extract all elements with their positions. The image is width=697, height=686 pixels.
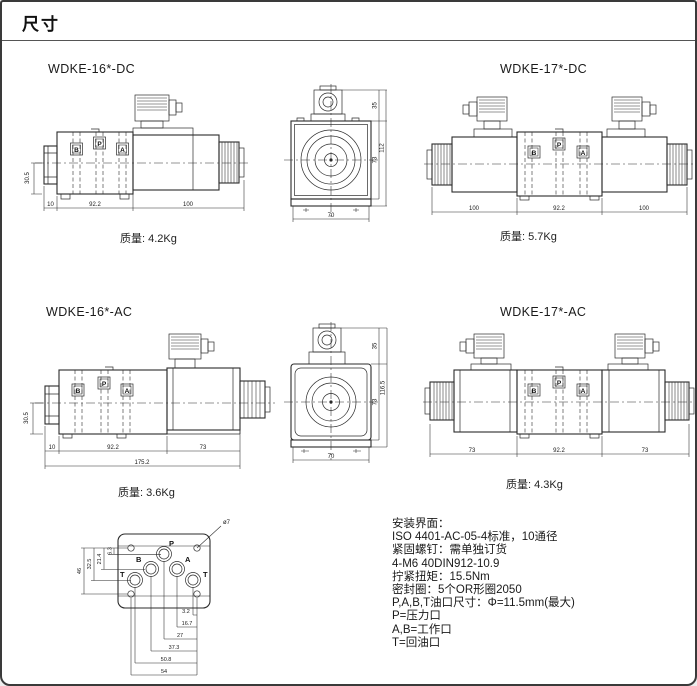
valve-body: B P A bbox=[45, 367, 167, 438]
dimension-lines: 30.5 10 92.2 100 bbox=[25, 163, 244, 211]
dc16-side-view-drawing: B P A 30.5 10 92.2 100 bbox=[17, 80, 272, 235]
port-label-a: A bbox=[581, 150, 586, 157]
datasheet-page: 尺寸 WDKE-16*-DC B P bbox=[0, 0, 697, 686]
dim-label: 92.2 bbox=[89, 202, 101, 208]
note-line: ISO 4401-AC-05-4标准，10通径 bbox=[392, 531, 575, 544]
electrical-connector bbox=[133, 95, 193, 135]
centerlines bbox=[284, 322, 378, 460]
dc17-side-view-drawing: B P A 100 92.2 100 bbox=[422, 82, 697, 232]
page-header: 尺寸 bbox=[2, 2, 695, 41]
left-connector bbox=[460, 334, 511, 370]
port-label-t-right: T bbox=[203, 570, 208, 579]
left-solenoid bbox=[425, 370, 517, 432]
ac16-side-view-drawing: B P A 30.5 10 92.2 73 175.2 bbox=[17, 320, 277, 482]
right-solenoid bbox=[602, 370, 694, 432]
mounting-interface-drawing: P B A T T ø7 6.3 21.4 32.5 46 3.2 16.7 2… bbox=[36, 510, 266, 682]
note-line: 紧固螺钉：需单独订货 bbox=[392, 544, 575, 557]
electrical-connector bbox=[309, 324, 345, 364]
dim-label: 70 bbox=[328, 454, 335, 460]
dim-label: 73 bbox=[469, 448, 476, 454]
dim-label: 175.2 bbox=[134, 460, 150, 466]
note-line: P,A,B,T油口尺寸：Φ=11.5mm(最大) bbox=[392, 597, 575, 610]
note-line: T=回油口 bbox=[392, 637, 575, 650]
dim-label: 35 bbox=[373, 342, 379, 349]
dim-label: 92.2 bbox=[553, 206, 565, 212]
port-label-p: P bbox=[557, 380, 562, 387]
dim-label: 73 bbox=[373, 398, 379, 405]
dim-label: 54 bbox=[161, 669, 167, 675]
port-label-p: P bbox=[169, 539, 174, 548]
dim-label: 10 bbox=[47, 202, 54, 208]
left-connector bbox=[463, 97, 512, 137]
port-label-b: B bbox=[76, 388, 81, 395]
dim-label: 100 bbox=[639, 206, 650, 212]
dim-label: 73 bbox=[200, 445, 207, 451]
electrical-connector bbox=[311, 86, 345, 121]
dim-label: 21.4 bbox=[97, 554, 103, 565]
dim-label: 92.2 bbox=[553, 448, 565, 454]
dim-label: 100 bbox=[469, 206, 480, 212]
hole-diameter-label: ø7 bbox=[223, 520, 231, 526]
ac17-side-view-drawing: B P A 73 92.2 73 bbox=[422, 322, 697, 472]
dim-label: 46 bbox=[77, 568, 83, 574]
dim-label: 10 bbox=[49, 445, 56, 451]
dim-label: 30.5 bbox=[24, 412, 30, 424]
note-line: 4-M6 40DIN912-10.9 bbox=[392, 558, 575, 571]
right-solenoid bbox=[602, 137, 692, 192]
port-label-a: A bbox=[581, 388, 586, 395]
weight-label-dc16: 质量: 4.2Kg bbox=[120, 230, 177, 246]
dc-front-view-drawing: 35 73 112 70 bbox=[283, 82, 395, 234]
dimension-lines: 100 92.2 100 bbox=[432, 187, 687, 215]
solenoid-block bbox=[167, 368, 270, 434]
dimension-lines: 73 92.2 73 bbox=[430, 424, 689, 457]
note-line: 拧紧扭矩：15.5Nm bbox=[392, 571, 575, 584]
note-line: 密封圈：5个OR形圈2050 bbox=[392, 584, 575, 597]
dim-label: 100 bbox=[183, 202, 194, 208]
centerlines bbox=[284, 84, 378, 218]
weight-label-ac17: 质量: 4.3Kg bbox=[506, 476, 563, 492]
ac-front-view-drawing: 35 73 116.5 70 bbox=[283, 320, 395, 482]
drawing-title-dc17: WDKE-17*-DC bbox=[500, 62, 587, 76]
weight-label-dc17: 质量: 5.7Kg bbox=[500, 228, 557, 244]
note-line: A,B=工作口 bbox=[392, 624, 575, 637]
port-label-p: P bbox=[102, 381, 107, 388]
valve-body: B P A bbox=[517, 129, 602, 200]
port-label-p: P bbox=[557, 142, 562, 149]
port-label-a: A bbox=[120, 147, 125, 154]
dim-label: 112 bbox=[380, 143, 386, 153]
port-label-a: A bbox=[125, 388, 130, 395]
note-line: P=压力口 bbox=[392, 610, 575, 623]
valve-body: B P A bbox=[44, 129, 133, 199]
port-label-t-left: T bbox=[120, 570, 125, 579]
dim-label: 116.5 bbox=[381, 380, 387, 395]
dim-label: 32.5 bbox=[87, 559, 93, 570]
dim-label: 92.2 bbox=[107, 445, 119, 451]
dimension-lines: 30.5 10 92.2 73 175.2 bbox=[24, 403, 240, 469]
port-label-b: B bbox=[532, 150, 537, 157]
dim-label: 16.7 bbox=[182, 621, 193, 627]
note-line: 安装界面： bbox=[392, 518, 575, 531]
dim-label: 73 bbox=[373, 156, 379, 163]
dim-label: 50.8 bbox=[161, 657, 172, 663]
vertical-dimensions: 6.3 21.4 32.5 46 bbox=[77, 547, 161, 594]
drawing-title-ac17: WDKE-17*-AC bbox=[500, 305, 586, 319]
dim-label: 73 bbox=[642, 448, 649, 454]
port-label-p: P bbox=[97, 141, 102, 148]
dim-label: 3.2 bbox=[182, 609, 190, 615]
horizontal-dimensions: 3.2 16.7 27 37.3 50.8 54 bbox=[131, 561, 197, 675]
drawing-title-dc16: WDKE-16*-DC bbox=[48, 62, 135, 76]
right-connector bbox=[607, 97, 656, 137]
port-label-b: B bbox=[74, 147, 79, 154]
solenoid-tube bbox=[133, 135, 244, 190]
dim-label: 30.5 bbox=[25, 172, 31, 184]
right-connector bbox=[608, 334, 659, 370]
dim-label: 37.3 bbox=[169, 645, 180, 651]
valve-body: B P A bbox=[517, 367, 602, 438]
dim-label: 6.3 bbox=[108, 547, 114, 555]
electrical-connector bbox=[169, 334, 214, 368]
installation-notes: 安装界面： ISO 4401-AC-05-4标准，10通径 紧固螺钉：需单独订货… bbox=[392, 518, 575, 650]
port-label-b: B bbox=[136, 555, 142, 564]
dim-label: 27 bbox=[177, 633, 183, 639]
page-title: 尺寸 bbox=[22, 10, 60, 35]
port-label-a: A bbox=[185, 555, 191, 564]
dim-label: 35 bbox=[373, 102, 379, 109]
weight-label-ac16: 质量: 3.6Kg bbox=[118, 484, 175, 500]
dim-label: 70 bbox=[328, 213, 335, 219]
port-label-b: B bbox=[532, 388, 537, 395]
left-solenoid bbox=[427, 137, 517, 192]
drawing-title-ac16: WDKE-16*-AC bbox=[46, 305, 132, 319]
